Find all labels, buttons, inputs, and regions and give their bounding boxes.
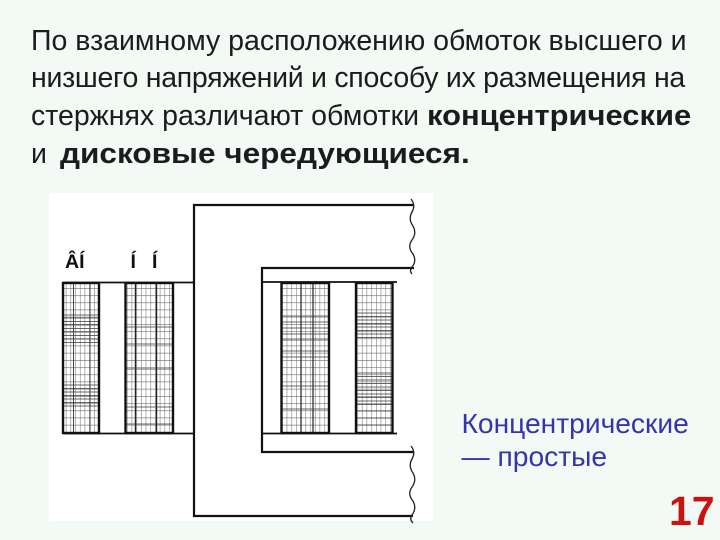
svg-text:Í: Í <box>131 250 137 273</box>
svg-text:ÂÍ: ÂÍ <box>65 249 85 273</box>
svg-text:Í: Í <box>152 250 158 273</box>
